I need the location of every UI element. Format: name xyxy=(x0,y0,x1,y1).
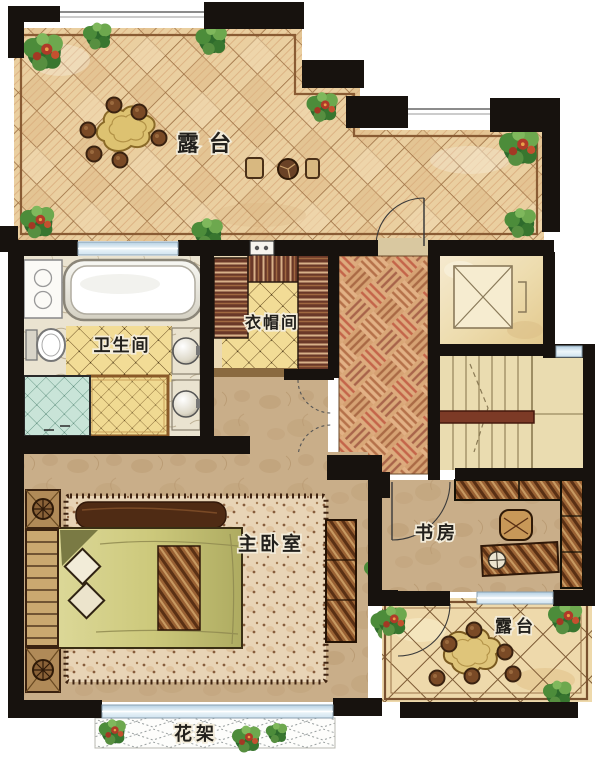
window xyxy=(556,346,582,357)
headboard xyxy=(26,530,58,646)
terrace-bottom xyxy=(376,598,593,708)
stool xyxy=(465,669,480,684)
study-label: 书房 xyxy=(415,522,459,543)
bed-bench xyxy=(76,502,226,528)
window xyxy=(78,242,178,255)
wardrobe xyxy=(248,252,300,282)
stool xyxy=(430,671,445,686)
flower-rack-label: 花架 xyxy=(174,723,218,744)
bathroom-label: 卫生间 xyxy=(94,335,151,355)
sink xyxy=(172,380,201,430)
stool xyxy=(467,623,482,638)
side-table xyxy=(26,490,60,528)
study-cabinet xyxy=(561,480,583,588)
stool xyxy=(498,645,513,660)
toilet xyxy=(26,329,65,361)
terrace-top xyxy=(14,9,544,256)
stool xyxy=(506,667,521,682)
vanity-cabinet xyxy=(24,260,62,318)
master-bedroom xyxy=(24,452,402,702)
bench xyxy=(306,159,319,178)
elevator xyxy=(440,252,543,344)
cloakroom-hatch-door xyxy=(250,241,274,255)
desk-chair xyxy=(500,510,532,540)
wardrobe xyxy=(214,258,248,338)
side-table xyxy=(26,648,60,692)
cloakroom-label: 衣帽间 xyxy=(245,313,299,332)
master-bedroom-label: 主卧室 xyxy=(238,532,304,555)
bed xyxy=(26,528,242,648)
bench xyxy=(246,158,263,178)
stool xyxy=(107,98,122,113)
floor-plan-page: 露台 卫生间 衣帽间 主卧室 书房 露台 花架 xyxy=(0,0,600,760)
stool xyxy=(152,131,167,146)
bedroom-cabinet xyxy=(326,520,356,642)
shower xyxy=(24,376,90,436)
bed-runner xyxy=(158,546,200,630)
staircase xyxy=(436,356,583,470)
bathtub xyxy=(64,260,202,320)
desk xyxy=(481,542,558,576)
floor-plan: 露台 卫生间 衣帽间 主卧室 书房 露台 花架 xyxy=(0,0,600,760)
hallway-floor xyxy=(339,256,428,474)
terrace-top-bench-set xyxy=(246,158,319,179)
stool xyxy=(132,105,147,120)
sink xyxy=(172,328,201,374)
terrace-bottom-label: 露台 xyxy=(495,616,537,636)
terrace-top-label: 露台 xyxy=(177,131,241,156)
study xyxy=(382,480,583,592)
hallway xyxy=(339,256,428,474)
wardrobe xyxy=(298,252,330,376)
window xyxy=(477,592,553,604)
handrail xyxy=(436,411,534,423)
stool xyxy=(87,147,102,162)
window xyxy=(102,705,333,718)
bathroom-mat xyxy=(88,376,168,436)
stool xyxy=(81,123,96,138)
stool xyxy=(442,637,457,652)
stool xyxy=(113,153,128,168)
